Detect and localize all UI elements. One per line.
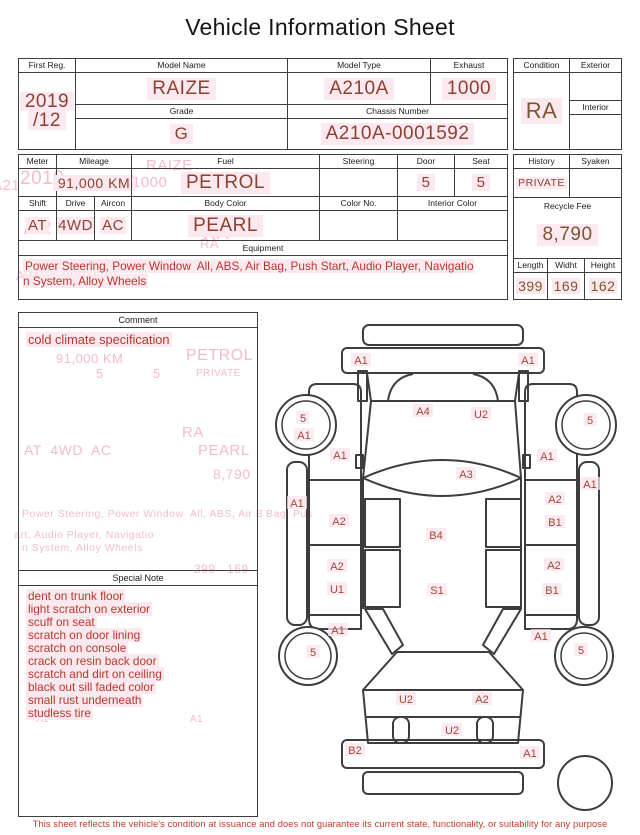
damage-label: B2 — [348, 745, 361, 757]
steering-label: Steering — [320, 155, 397, 169]
comment-line: cold climate specification — [26, 332, 250, 348]
first-reg-value-month: /12 — [28, 111, 66, 130]
page-title: Vehicle Information Sheet — [0, 14, 640, 41]
seat-cell: Seat 5 — [454, 155, 507, 196]
special-note-area: dent on trunk floorlight scratch on exte… — [19, 586, 257, 816]
sill-left — [287, 462, 307, 625]
comment-note-panel: Comment cold climate specification Speci… — [18, 312, 258, 817]
recycle-fee-value: 8,790 — [537, 224, 597, 246]
grade-cell: Grade G — [76, 105, 287, 149]
damage-label: A1 — [331, 625, 344, 637]
damage-label: A1 — [534, 631, 547, 643]
drive-value: 4WD — [57, 217, 94, 234]
rear-fender-right — [525, 615, 577, 629]
front-bumper — [342, 348, 544, 373]
history-fee-table: History PRIVATE Syaken Recycle Fee 8,790… — [513, 154, 622, 300]
mileage-value: 91,000 KM — [53, 175, 135, 191]
height-label: Height — [585, 259, 621, 273]
roof-rail-front-right — [486, 499, 521, 547]
model-name-cell: Model Name RAIZE — [76, 59, 287, 104]
exhaust-cell: Exhaust 1000 — [430, 59, 507, 104]
rear-door-left — [309, 545, 361, 615]
door-cell: Door 5 — [397, 155, 454, 196]
model-name-value: RAIZE — [147, 78, 215, 100]
damage-label: 5 — [578, 645, 584, 657]
damage-label: A2 — [330, 561, 343, 573]
door-label: Door — [398, 155, 454, 169]
history-label: History — [514, 155, 569, 169]
aircon-label: Aircon — [95, 197, 131, 211]
damage-label: 5 — [310, 647, 316, 659]
length-cell: Length 399 — [514, 259, 547, 299]
chassis-number-cell: Chassis Number A210A-0001592 — [287, 105, 507, 149]
special-note-line-text: scratch and dirt on ceiling — [26, 667, 164, 681]
damage-label: A2 — [332, 516, 345, 528]
damage-label: A1 — [354, 355, 367, 367]
damage-label: A1 — [333, 450, 346, 462]
height-cell: Height 162 — [584, 259, 621, 299]
chassis-number-value: A210A-0001592 — [321, 123, 475, 145]
spare-wheel — [558, 756, 612, 810]
aircon-value: AC — [100, 217, 126, 234]
recycle-fee-label: Recycle Fee — [514, 198, 621, 211]
damage-label: 5 — [300, 413, 306, 425]
seat-label: Seat — [455, 155, 507, 169]
width-cell: Widht 169 — [547, 259, 584, 299]
rear-bottom-strip — [363, 772, 523, 794]
exterior-label: Exterior — [570, 59, 621, 73]
disclaimer-text: This sheet reflects the vehicle's condit… — [0, 819, 640, 829]
special-note-line-text: black out sill faded color — [26, 680, 156, 694]
interior-value — [570, 115, 621, 149]
first-reg-label: First Reg. — [19, 59, 75, 73]
car-diagram: A1A1A4U25A15A1A1A3A1A1A2A2B1B4A2U1S1A2B1… — [266, 312, 640, 817]
comment-area: cold climate specification — [19, 328, 257, 570]
damage-label: A1 — [540, 451, 553, 463]
condition-cell: Condition RA — [514, 59, 569, 149]
grade-label: Grade — [76, 105, 287, 119]
shift-cell: Shift AT — [19, 197, 56, 240]
equipment-value: Power Steering, Power Window All, ABS, A… — [19, 256, 507, 299]
c-pillar-left — [365, 609, 403, 654]
body-color-value: PEARL — [188, 215, 263, 237]
vehicle-information-sheet: 2019/12RAIZE1000RAA21RAGA210A-000159291,… — [0, 0, 640, 835]
shift-value: AT — [26, 217, 49, 234]
wheel-front-left — [276, 395, 336, 455]
roof-rail-rear-right — [486, 550, 521, 607]
meter-cell: Meter — [19, 155, 56, 196]
damage-label: A4 — [416, 406, 429, 418]
special-note-line-text: scratch on door lining — [26, 628, 142, 642]
model-type-cell: Model Type A210A — [287, 59, 430, 104]
history-value: PRIVATE — [516, 177, 567, 189]
spec-table: Meter Mileage 91,000 KM Fuel PETROL Stee… — [18, 154, 508, 300]
front-door-right — [525, 480, 577, 545]
mileage-label: Mileage — [57, 155, 131, 169]
interior-color-label: Interior Color — [398, 197, 507, 211]
special-note-line-text: dent on trunk floor — [26, 589, 125, 603]
comment-line-text: cold climate specification — [26, 332, 172, 347]
damage-label: A2 — [475, 694, 488, 706]
damage-label: U2 — [445, 725, 459, 737]
damage-label: U1 — [330, 584, 344, 596]
fuel-label: Fuel — [132, 155, 319, 169]
damage-label: A2 — [547, 560, 560, 572]
color-no-label: Color No. — [320, 197, 397, 211]
damage-label: A2 — [548, 494, 561, 506]
damage-label: A1 — [583, 479, 596, 491]
width-label: Widht — [548, 259, 584, 273]
model-type-label: Model Type — [288, 59, 430, 73]
body-edge-front-left — [363, 401, 371, 478]
damage-label: B1 — [548, 517, 561, 529]
syaken-cell: Syaken — [569, 155, 621, 197]
model-info-table: First Reg. 2019 /12 Model Name RAIZE Mod… — [18, 58, 508, 150]
interior-label: Interior — [570, 101, 621, 115]
syaken-label: Syaken — [570, 155, 621, 169]
damage-label: S1 — [430, 585, 443, 597]
roof-rail-rear-left — [365, 550, 400, 607]
rear-bumper — [342, 740, 544, 768]
c-pillar-right — [483, 609, 521, 654]
interior-color-cell: Interior Color — [397, 197, 507, 240]
aircon-cell: Aircon AC — [94, 197, 131, 240]
special-note-line: studless tire — [26, 707, 250, 720]
special-note-line-text: scratch on console — [26, 641, 128, 655]
front-door-left — [309, 480, 361, 545]
damage-label: B4 — [429, 530, 442, 542]
damage-label: A1 — [290, 498, 303, 510]
history-cell: History PRIVATE — [514, 155, 569, 197]
body-color-label: Body Color — [132, 197, 319, 211]
condition-table: Condition RA Exterior Interior — [513, 58, 622, 150]
mileage-cell: Mileage 91,000 KM — [56, 155, 131, 196]
exterior-value — [570, 73, 621, 101]
windshield — [363, 460, 521, 496]
damage-label: B1 — [545, 585, 558, 597]
steering-cell: Steering — [319, 155, 397, 196]
exhaust-label: Exhaust — [431, 59, 507, 73]
door-value: 5 — [417, 174, 436, 191]
special-note-line-text: light scratch on exterior — [26, 602, 152, 616]
damage-label: 5 — [587, 415, 593, 427]
hood — [367, 373, 519, 401]
length-value: 399 — [516, 278, 545, 294]
chassis-number-label: Chassis Number — [288, 105, 507, 119]
model-type-value: A210A — [324, 78, 394, 100]
first-reg-cell: First Reg. 2019 /12 — [19, 59, 75, 149]
fuel-cell: Fuel PETROL — [131, 155, 319, 196]
condition-value: RA — [521, 98, 563, 124]
rear-window — [363, 652, 523, 690]
drive-cell: Drive 4WD — [56, 197, 94, 240]
fuel-value: PETROL — [181, 172, 270, 194]
damage-label: U2 — [474, 409, 488, 421]
drive-label: Drive — [57, 197, 94, 211]
special-note-line-text: scuff on seat — [26, 615, 97, 629]
exhaust-value: 1000 — [442, 78, 496, 100]
height-value: 162 — [589, 278, 618, 294]
special-note-label: Special Note — [19, 570, 257, 586]
hood-arch-left — [388, 374, 413, 401]
damage-label: A1 — [297, 430, 310, 442]
first-reg-value-year: 2019 — [20, 92, 74, 111]
comment-label: Comment — [19, 313, 257, 328]
special-note-line-text: small rust underneath — [26, 693, 143, 707]
width-value: 169 — [552, 278, 581, 294]
damage-label: U2 — [399, 694, 413, 706]
hood-arch-right — [473, 374, 498, 401]
damage-label: A1 — [521, 355, 534, 367]
body-color-cell: Body Color PEARL — [131, 197, 319, 240]
seat-value: 5 — [472, 174, 491, 191]
equipment-label: Equipment — [19, 241, 507, 256]
wheels — [276, 395, 616, 810]
front-grille-strip — [363, 325, 523, 345]
shift-label: Shift — [19, 197, 56, 211]
length-label: Length — [514, 259, 547, 273]
damage-label: A3 — [459, 469, 472, 481]
meter-label: Meter — [19, 155, 56, 169]
model-name-label: Model Name — [76, 59, 287, 73]
color-no-cell: Color No. — [319, 197, 397, 240]
condition-label: Condition — [514, 59, 569, 73]
damage-label: A1 — [523, 748, 536, 760]
grade-value: G — [170, 124, 194, 144]
roof-rail-front-left — [365, 499, 400, 547]
recycle-fee-cell: Recycle Fee 8,790 — [514, 198, 621, 259]
special-note-line-text: studless tire — [26, 706, 93, 720]
body-edge-front-right — [515, 401, 521, 478]
special-note-line-text: crack on resin back door — [26, 654, 159, 668]
rear-door-right — [525, 545, 577, 615]
